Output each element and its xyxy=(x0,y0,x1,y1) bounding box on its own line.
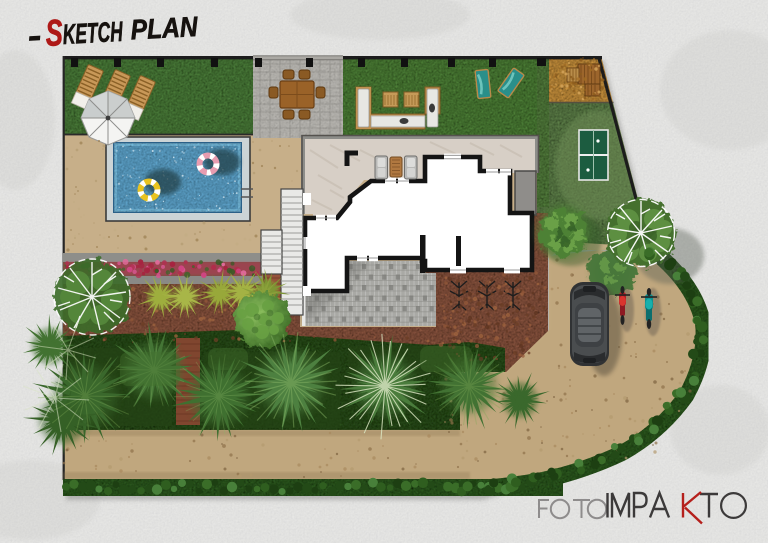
svg-text:KETCH: KETCH xyxy=(62,16,124,50)
svg-text:PLAN: PLAN xyxy=(130,11,199,45)
